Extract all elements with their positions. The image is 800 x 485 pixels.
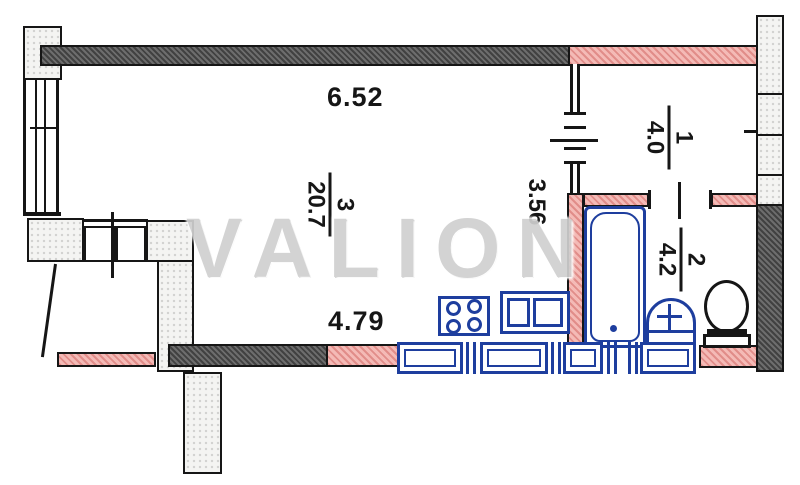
right-wall-block-1 <box>756 15 784 95</box>
counter-module-2-inner <box>487 349 541 367</box>
hall-door-jamb-1 <box>564 112 586 115</box>
counter-tick-2 <box>473 342 476 374</box>
counter-tick-1 <box>466 342 469 374</box>
bottom-pier <box>183 372 222 474</box>
stove-burner-2 <box>467 299 482 314</box>
room-bath-number: 2 <box>680 228 709 292</box>
bath-door-cross-tick <box>678 182 681 219</box>
left-window-line-mid2 <box>44 78 46 214</box>
balcony-slant-edge <box>41 264 57 358</box>
room-label-hall: 1 4.0 <box>642 106 697 170</box>
counter-module-1 <box>397 342 463 374</box>
counter-tick-5 <box>607 342 610 374</box>
bath-top-wall-right <box>711 193 758 207</box>
bath-bottom-wall <box>699 345 758 368</box>
room-bath-area: 4.2 <box>654 228 680 292</box>
counter-module-1-inner <box>404 349 456 367</box>
counter-tick-3 <box>551 342 554 374</box>
right-wall-bearing <box>756 204 784 372</box>
dimension-bottom: 4.79 <box>328 306 385 337</box>
sink-bowl-right <box>533 298 563 327</box>
hall-wall-upper <box>570 64 580 114</box>
balcony-block-left <box>27 218 84 262</box>
washbasin-front-line <box>649 330 693 333</box>
counter-tick-6 <box>614 342 617 374</box>
dimension-top: 6.52 <box>327 82 384 113</box>
counter-tick-8 <box>635 342 638 374</box>
bathtub-inner <box>590 212 640 342</box>
counter-tick-4 <box>558 342 561 374</box>
floor-plan: 6.52 4.79 3.56 3 20.7 1 4.0 2 4.2 VALION <box>0 0 800 485</box>
room-hall-number: 1 <box>668 106 697 170</box>
right-wall-block-2 <box>756 93 784 136</box>
hall-door-jamb-2 <box>564 126 586 129</box>
left-window-line-inner <box>56 78 59 214</box>
stove-burner-4 <box>467 317 482 332</box>
balcony-bottom-wall <box>57 352 156 367</box>
top-wall-partition <box>568 45 758 66</box>
room-label-bath: 2 4.2 <box>654 228 709 292</box>
stove-icon <box>438 296 490 336</box>
balcony-door-tick <box>111 212 114 278</box>
left-window-sill <box>23 212 61 216</box>
left-window-line-outer <box>23 78 26 214</box>
bathtub-drain-dot <box>610 325 617 332</box>
watermark-text: VALION <box>186 200 593 297</box>
left-window-tick <box>30 127 59 129</box>
hall-door-jamb-3 <box>564 147 586 150</box>
bottom-wall-bearing <box>168 344 328 367</box>
stove-burner-1 <box>446 301 461 316</box>
left-window-line-mid1 <box>35 78 37 214</box>
toilet-base <box>703 334 751 348</box>
right-wall-block-4 <box>756 174 784 206</box>
bath-door-jamb-left <box>648 190 651 209</box>
hall-door-cross-tick <box>550 139 598 142</box>
counter-module-4-inner <box>647 349 689 367</box>
stove-burner-3 <box>446 319 461 334</box>
sink-bowl-left <box>507 298 530 327</box>
bottom-wall-partition <box>326 344 402 367</box>
room-hall-area: 4.0 <box>642 106 668 170</box>
balcony-top-line <box>82 219 148 222</box>
right-wall-block-3 <box>756 134 784 176</box>
toilet-bowl-icon <box>704 280 749 333</box>
right-wall-tick <box>744 130 758 133</box>
top-wall-bearing <box>40 45 570 66</box>
counter-module-3 <box>563 342 603 374</box>
bath-door-jamb-right <box>709 190 712 209</box>
counter-module-4 <box>640 342 696 374</box>
counter-module-3-inner <box>570 349 596 367</box>
washbasin-icon <box>646 298 696 348</box>
counter-module-2 <box>480 342 548 374</box>
washbasin-tap-horizontal <box>657 315 682 318</box>
hall-door-jamb-4 <box>564 161 586 164</box>
counter-tick-7 <box>628 342 631 374</box>
balcony-opening-right <box>116 226 146 262</box>
